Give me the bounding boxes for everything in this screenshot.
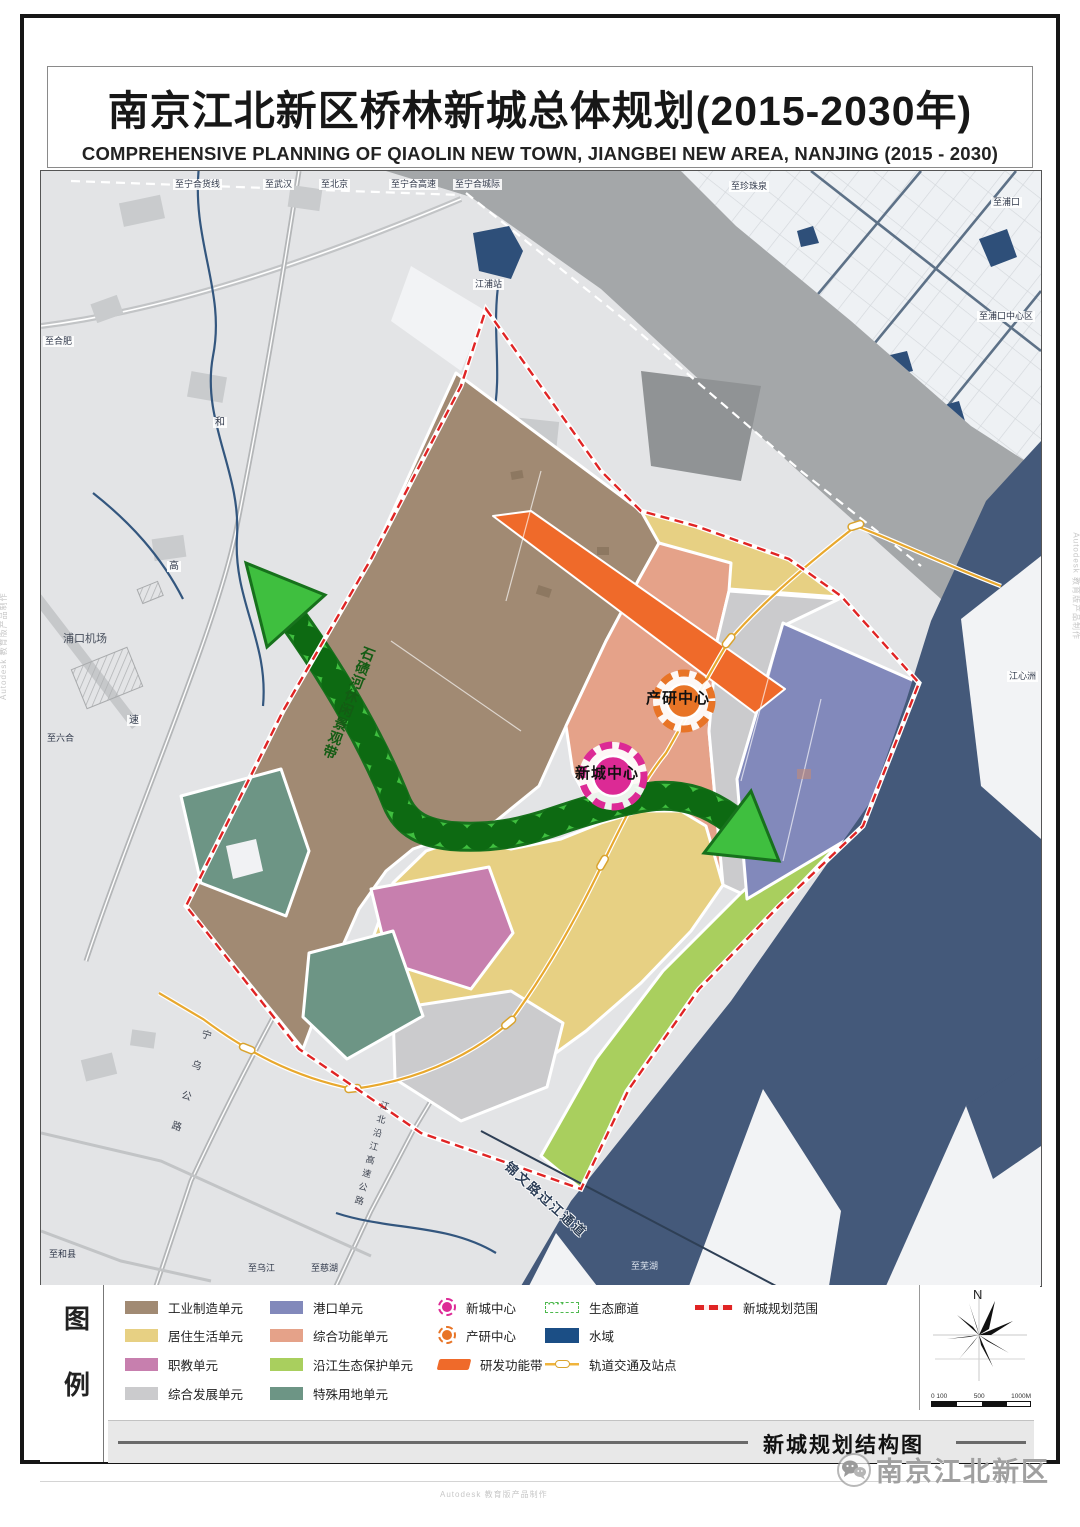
road-label-char: 和 [213,417,227,428]
legend-label: 产研中心 [466,1326,516,1345]
legend-label: 轨道交通及站点 [589,1355,677,1374]
road-label: 至合肥 [43,336,74,347]
legend-icon-rail-transit [545,1360,579,1369]
road-label: 至武汉 [263,179,294,190]
page-subtitle: COMPREHENSIVE PLANNING OF QIAOLIN NEW TO… [48,143,1032,165]
title-block: 南京江北新区桥林新城总体规划(2015-2030年) COMPREHENSIVE… [47,66,1033,168]
road-label: 至六合 [45,733,76,744]
legend-item: 职教单元 [125,1356,218,1372]
legend-swatch-special [270,1387,303,1400]
legend-label: 生态廊道 [589,1298,639,1317]
scale-tick: 500 [974,1393,985,1400]
road-label: 至宁合城际 [453,179,502,190]
legend-item: 综合功能单元 [270,1327,388,1343]
legend-label: 职教单元 [168,1355,218,1374]
legend-item: 水域 [545,1327,614,1343]
legend-title-char: 例 [64,1365,90,1402]
plan-sheet: Autodesk 教育版产品制作 Autodesk 教育版产品制作 Autode… [0,0,1080,1527]
compass: N 0 100 500 1000M [925,1287,1035,1409]
legend-icon-rnd-band [437,1359,472,1370]
legend-item: 居住生活单元 [125,1327,243,1343]
industry-research-center-label: 产研中心 [644,693,712,704]
legend-label: 新城中心 [466,1298,516,1317]
compass-rose [925,1287,1035,1387]
legend-label: 研发功能带 [480,1355,543,1374]
road-label: 至和县 [47,1249,78,1260]
legend-label: 新城规划范围 [743,1298,818,1317]
legend-swatch-water [545,1328,579,1343]
legend-item: 研发功能带 [438,1356,543,1372]
rule-left [118,1441,748,1444]
scale-tick: 0 100 [931,1393,947,1400]
legend-item: 生态廊道 [545,1299,639,1315]
legend-icon-new-town-center [438,1298,456,1316]
legend-item: 特殊用地单元 [270,1385,388,1401]
legend-item: 沿江生态保护单元 [270,1356,413,1372]
road-label: 至宁合货线 [173,179,222,190]
legend-swatch-vocational [125,1358,158,1371]
legend-item: 工业制造单元 [125,1299,243,1315]
legend-title-char: 图 [64,1299,90,1336]
autodesk-watermark-left: Autodesk 教育版产品制作 [0,592,9,700]
road-label-char: 高 [167,561,181,572]
compass-divider [919,1285,920,1410]
brand-account: 南京江北新区 [876,1450,1050,1489]
scale-bar-segments [931,1401,1031,1407]
autodesk-watermark-right: Autodesk 教育版产品制作 [1071,532,1080,640]
road-label: 至乌江 [246,1263,277,1274]
station-label: 江浦站 [473,279,504,290]
legend-swatch-industry [125,1301,158,1314]
brand-watermark: 南京江北新区 [836,1450,1050,1489]
legend-label: 沿江生态保护单元 [313,1355,413,1374]
rule-right [956,1441,1026,1444]
legend-item: 新城中心 [438,1299,516,1315]
legend-swatch-port [270,1301,303,1314]
road-label: 至浦口中心区 [977,311,1035,322]
gray-blob [641,371,761,481]
road-label: 至慈湖 [309,1263,340,1274]
wechat-icon [836,1452,872,1488]
legend-item: 港口单元 [270,1299,363,1315]
new-town-center-label: 新城中心 [573,768,641,779]
legend-label: 综合功能单元 [313,1326,388,1345]
map-canvas [41,171,1041,1286]
scale-tick: 1000M [1011,1393,1031,1400]
autodesk-watermark-bottom: Autodesk 教育版产品制作 [440,1489,548,1500]
road-label: 至浦口 [991,197,1022,208]
page-title: 南京江北新区桥林新城总体规划(2015-2030年) [48,77,1032,137]
legend-swatch-riverside-eco [270,1358,303,1371]
legend-icon-planning-boundary [695,1305,733,1310]
legend-label: 居住生活单元 [168,1326,243,1345]
legend-icon-eco-corridor [545,1302,579,1313]
legend-swatch-comprehensive-function [270,1329,303,1342]
legend-label: 工业制造单元 [168,1298,243,1317]
road-label: 至北京 [319,179,350,190]
north-label: N [973,1287,982,1302]
road-label: 至宁合高速 [389,179,438,190]
legend-item: 综合发展单元 [125,1385,243,1401]
planning-map[interactable]: 至宁合货线 至武汉 至北京 至宁合高速 至宁合城际 至珍珠泉 至浦口 江浦站 至… [40,170,1042,1287]
legend-item: 轨道交通及站点 [545,1356,677,1372]
legend-label: 特殊用地单元 [313,1384,388,1403]
legend-item: 产研中心 [438,1327,516,1343]
scale-bar: 0 100 500 1000M [931,1393,1031,1407]
legend-swatch-residential [125,1329,158,1342]
legend-swatch-comprehensive-dev [125,1387,158,1400]
road-label: 至芜湖 [629,1261,660,1272]
airport-label: 浦口机场 [61,634,109,645]
legend-label: 综合发展单元 [168,1384,243,1403]
road-label-char: 速 [127,715,141,726]
island-label: 江心洲 [1007,671,1038,682]
legend-label: 水域 [589,1326,614,1345]
legend-item: 新城规划范围 [695,1299,818,1315]
road-label: 至珍珠泉 [729,181,769,192]
legend-label: 港口单元 [313,1298,363,1317]
legend-divider [103,1285,104,1462]
legend-icon-industry-research-center [438,1326,456,1344]
